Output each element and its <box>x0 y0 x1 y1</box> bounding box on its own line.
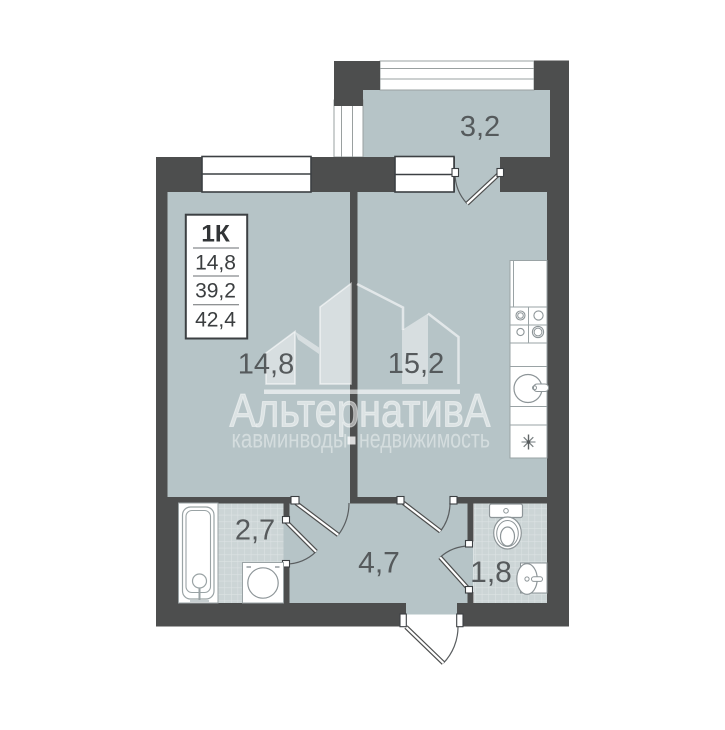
svg-text:14,8: 14,8 <box>195 252 236 275</box>
svg-text:1К: 1К <box>201 221 230 248</box>
svg-text:15,2: 15,2 <box>388 348 444 380</box>
svg-text:4,7: 4,7 <box>358 547 400 580</box>
svg-text:42,4: 42,4 <box>195 309 236 332</box>
svg-text:кавминводы: кавминводы <box>232 424 348 454</box>
svg-text:1,8: 1,8 <box>470 556 512 589</box>
svg-text:3,2: 3,2 <box>460 111 500 143</box>
svg-text:2,7: 2,7 <box>235 515 275 547</box>
svg-text:недвижимость: недвижимость <box>359 424 490 454</box>
svg-text:39,2: 39,2 <box>195 280 236 303</box>
svg-text:14,8: 14,8 <box>238 349 294 381</box>
